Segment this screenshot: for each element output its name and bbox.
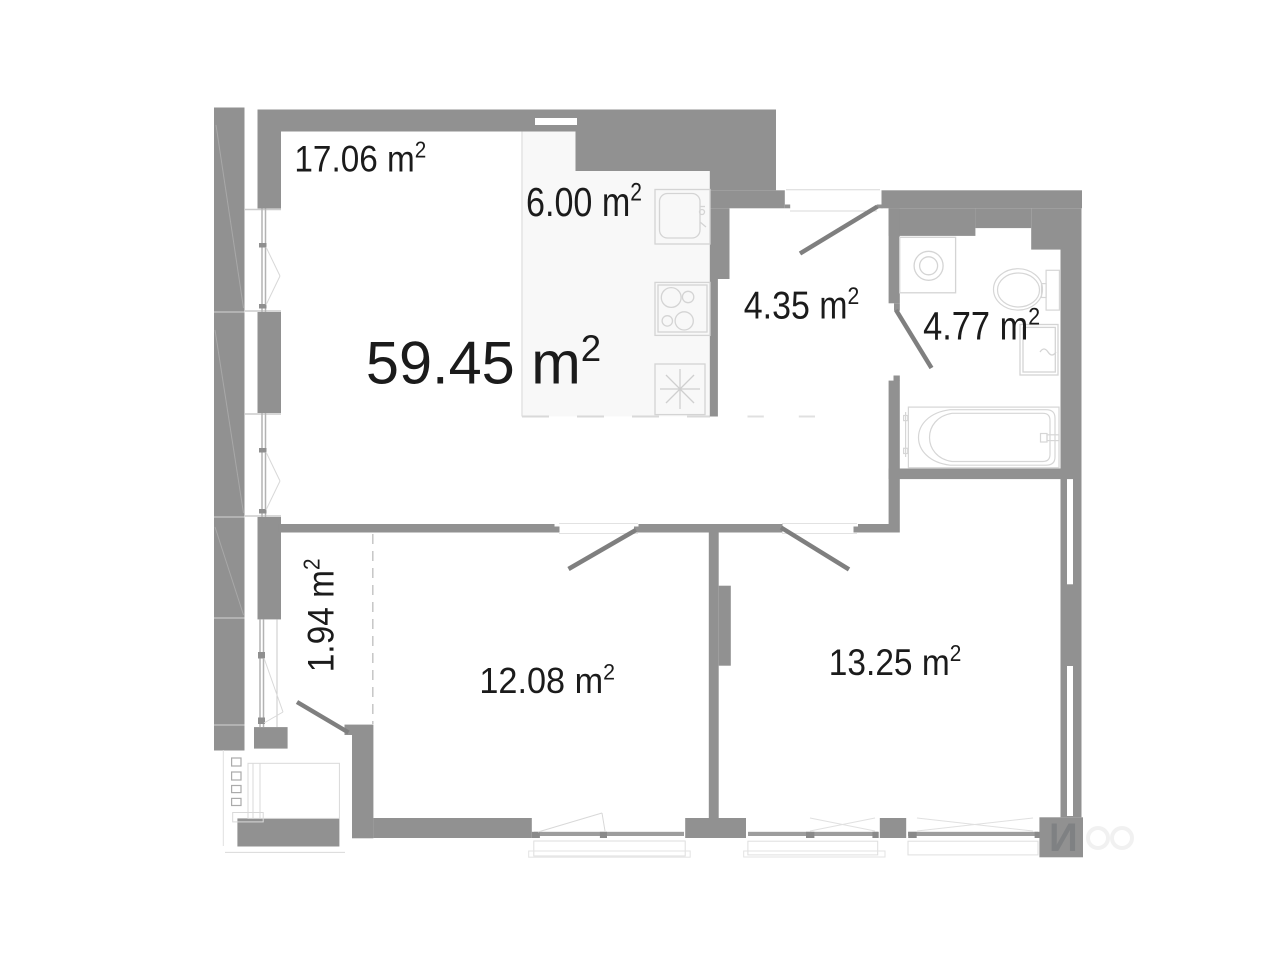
svg-text:И: И [1049, 816, 1078, 860]
svg-text:59.45 m2: 59.45 m2 [366, 328, 601, 397]
svg-text:13.25 m2: 13.25 m2 [829, 640, 962, 683]
svg-text:4.35 m2: 4.35 m2 [744, 283, 860, 328]
svg-text:12.08 m2: 12.08 m2 [479, 659, 615, 701]
svg-text:17.06 m2: 17.06 m2 [294, 136, 426, 179]
svg-text:1.94 m2: 1.94 m2 [299, 558, 342, 672]
svg-text:4.77 m2: 4.77 m2 [923, 303, 1040, 348]
svg-text:6.00 m2: 6.00 m2 [526, 179, 642, 225]
